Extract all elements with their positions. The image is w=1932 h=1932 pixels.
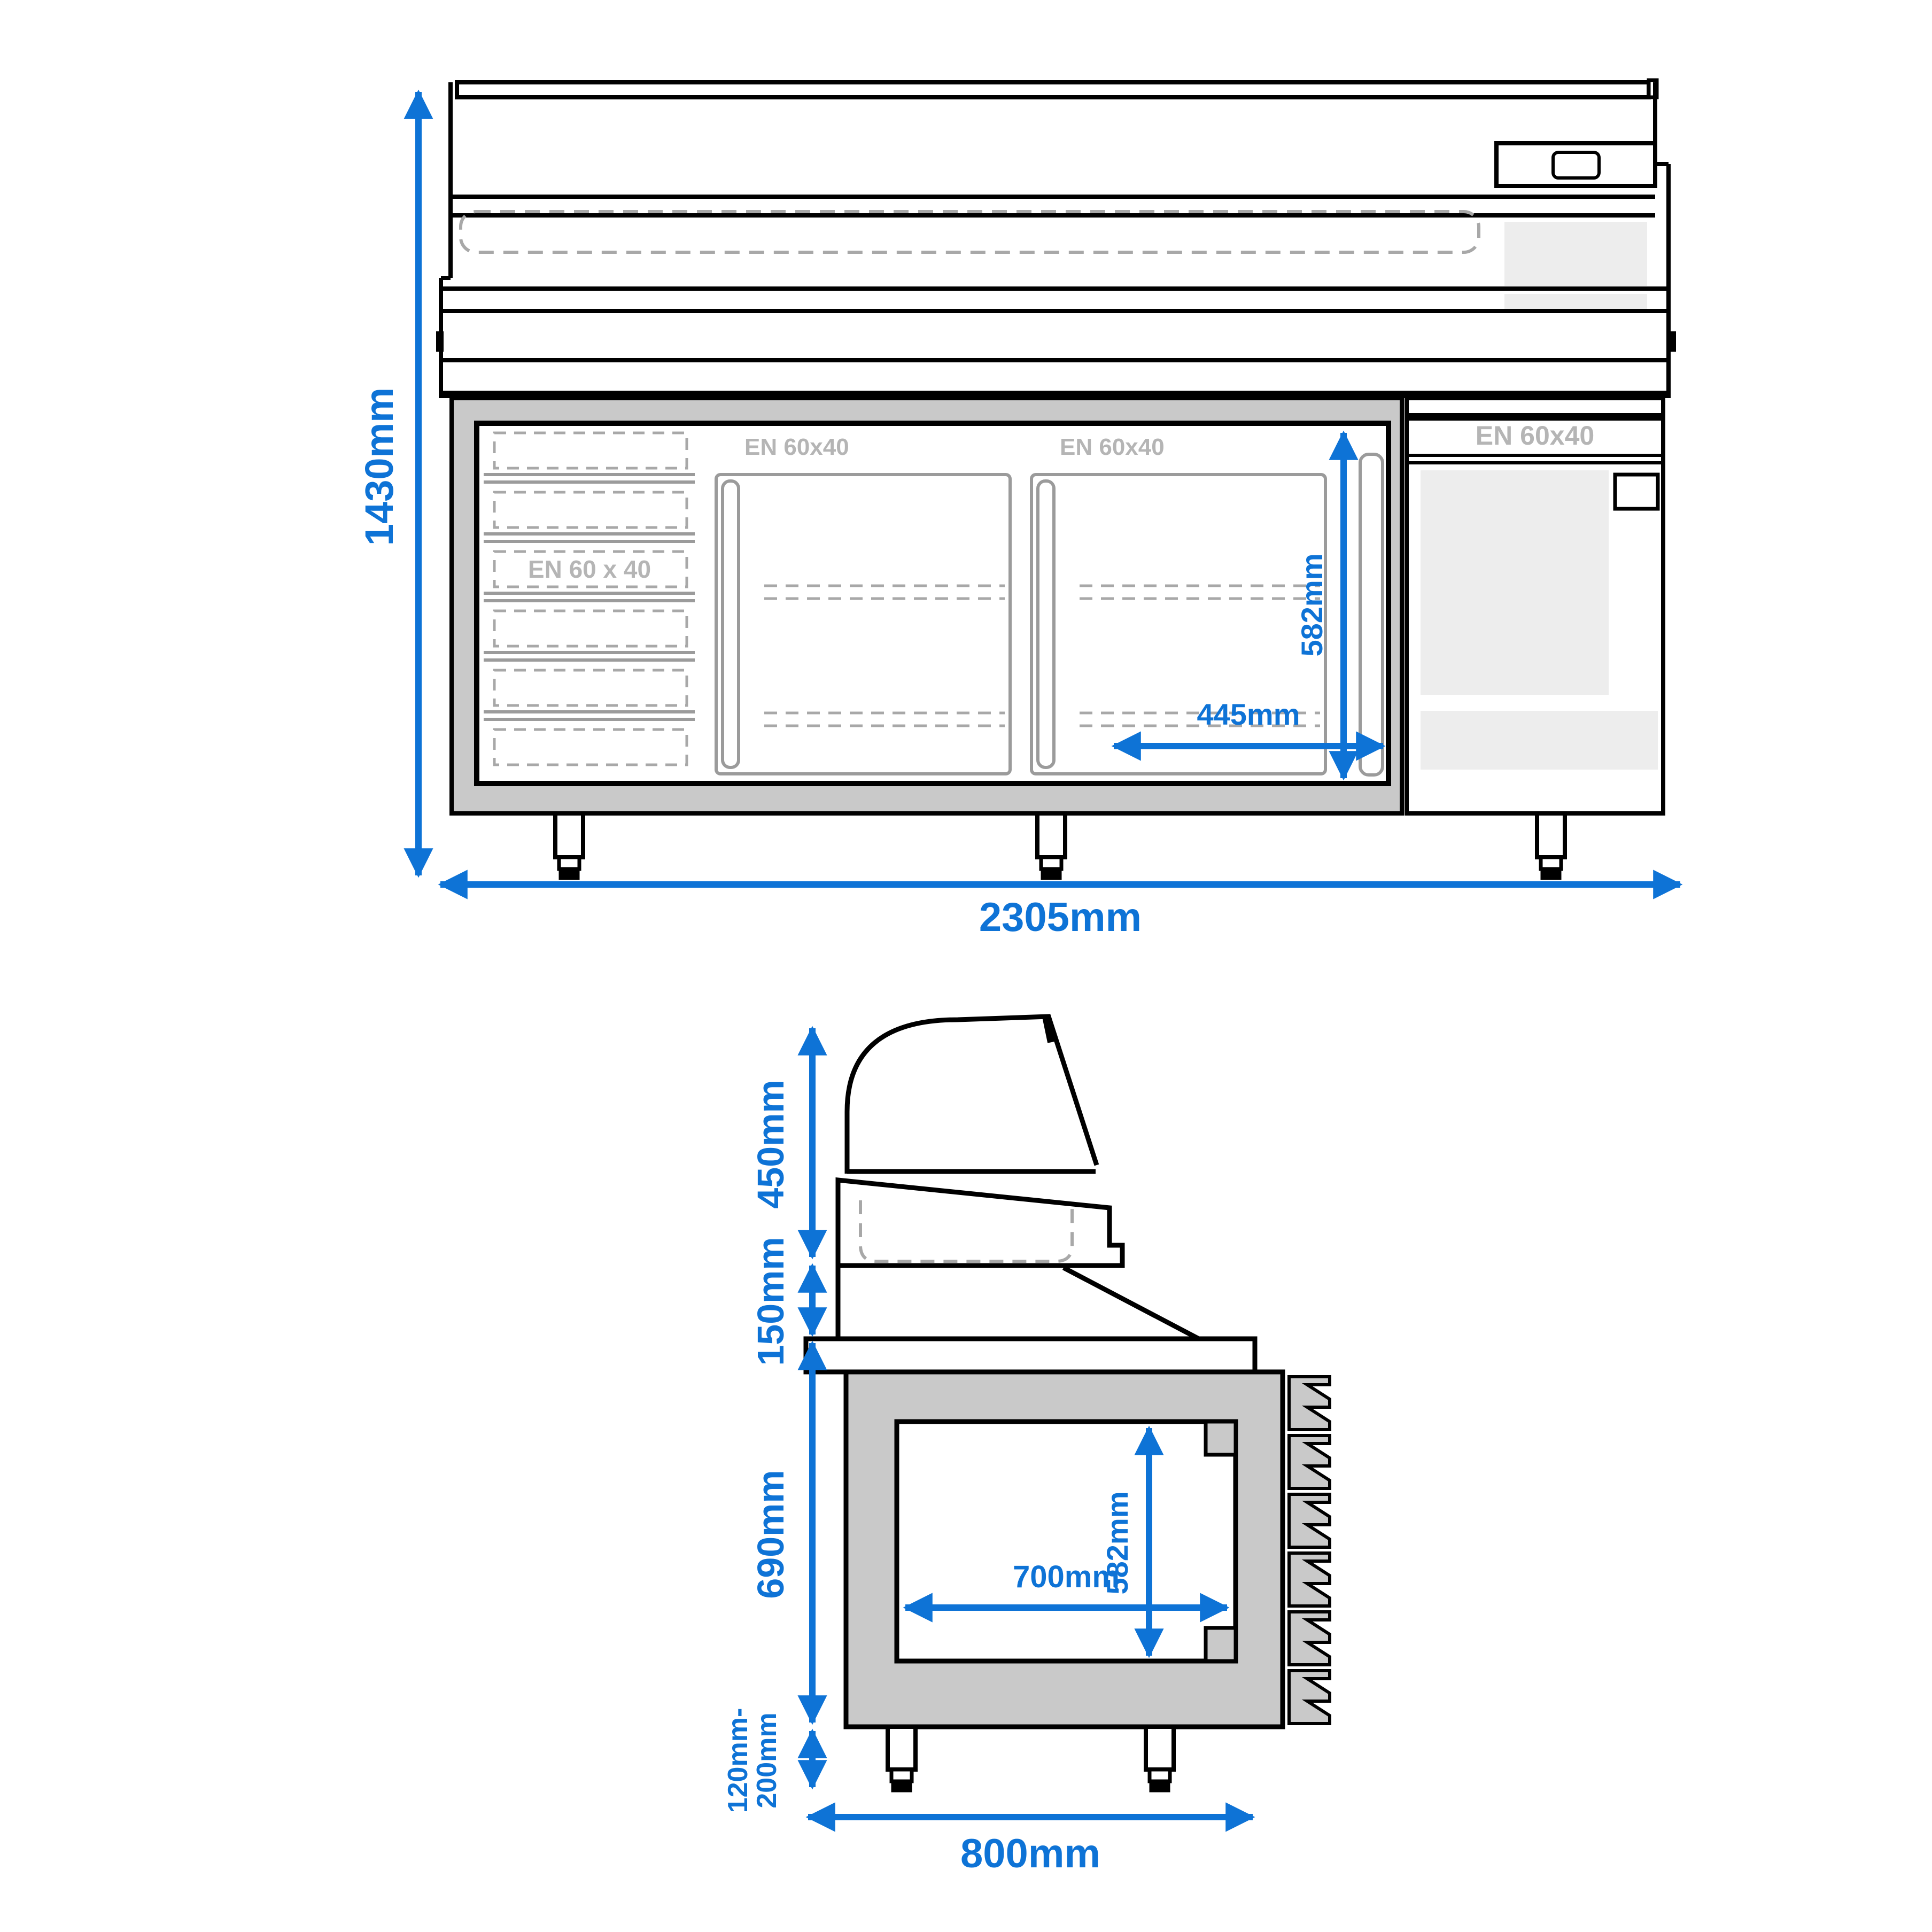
left-hinge-tick [436,331,444,352]
door-handle [723,481,739,767]
door-panel [716,475,1010,774]
overall-depth-label: 800mm [960,1831,1100,1876]
rail-brackets [1289,1377,1330,1724]
rail-bracket [1289,1553,1330,1606]
switch-box [1615,475,1658,509]
right-door-rack-label: EN 60x40 [1060,434,1165,460]
riser-height-label: 150mm [750,1237,792,1365]
vent-strip [1504,294,1647,309]
pan-well [838,1180,1199,1339]
condenser-grille [1421,470,1609,695]
rail-bracket [1289,1436,1330,1488]
display-case [436,80,1676,398]
rail-bracket [1289,1494,1330,1547]
vent-strip-lower [1421,711,1658,770]
side-view: 450mm 150mm 690mm 120mm- 200mm 582mm 700… [723,1017,1330,1876]
technical-drawing-page: EN 60 x 40 EN 60x40 EN 60x40 [0,0,1932,1932]
vent-panel [1504,222,1647,286]
counter-slab [806,1339,1255,1372]
side-feet [888,1727,1174,1792]
riser-slant [1064,1268,1199,1339]
cabinet-section [806,1339,1283,1727]
display-height-label: 450mm [750,1080,792,1208]
left-door-rack-label: EN 60x40 [744,434,849,460]
overall-width-label: 2305mm [979,895,1142,940]
foot [555,813,583,880]
interior-height-label: 582mm [1295,553,1329,656]
front-feet [555,813,1565,880]
glass-outline [847,1017,1097,1174]
side-module-rack-label: EN 60x40 [1476,421,1594,451]
base-cabinet: EN 60 x 40 EN 60x40 EN 60x40 [452,398,1402,813]
cabinet-cavity [897,1422,1236,1661]
glass-end-tick [1046,1017,1052,1042]
pan-well-dashed [461,212,1479,252]
cavity-step-top [1206,1422,1236,1455]
rail-bracket [1289,1377,1330,1430]
door-left [716,475,1010,774]
foot [888,1727,915,1792]
module-top-band [1407,413,1663,421]
top-bar [457,82,1649,97]
drawer-rack-label: EN 60 x 40 [528,555,651,583]
rail-bracket [1289,1671,1330,1724]
cavity-step-bottom [1206,1628,1236,1661]
door-width-label: 445mm [1197,697,1300,731]
drawing-canvas: EN 60 x 40 EN 60x40 EN 60x40 [0,0,1932,1932]
feet-height-label-line2: 200mm [751,1712,782,1808]
interior-depth-label: 700mm [1013,1559,1120,1594]
overall-height-label: 1430mm [357,387,401,546]
glass-canopy [847,1017,1097,1174]
body-height-label: 690mm [750,1470,792,1599]
right-hinge-tick [1669,331,1676,352]
foot [1537,813,1565,880]
foot [1037,813,1065,880]
rail-bracket [1289,1612,1330,1665]
well-body [838,1180,1122,1266]
front-view: EN 60 x 40 EN 60x40 EN 60x40 [357,80,1680,940]
door-handle [1038,481,1054,767]
foot [1146,1727,1174,1792]
feet-height-label-line1: 120mm- [723,1708,754,1813]
right-frame-edge [1655,82,1669,398]
machine-module: EN 60x40 [1407,398,1663,813]
side-rail-bar [1360,454,1383,775]
